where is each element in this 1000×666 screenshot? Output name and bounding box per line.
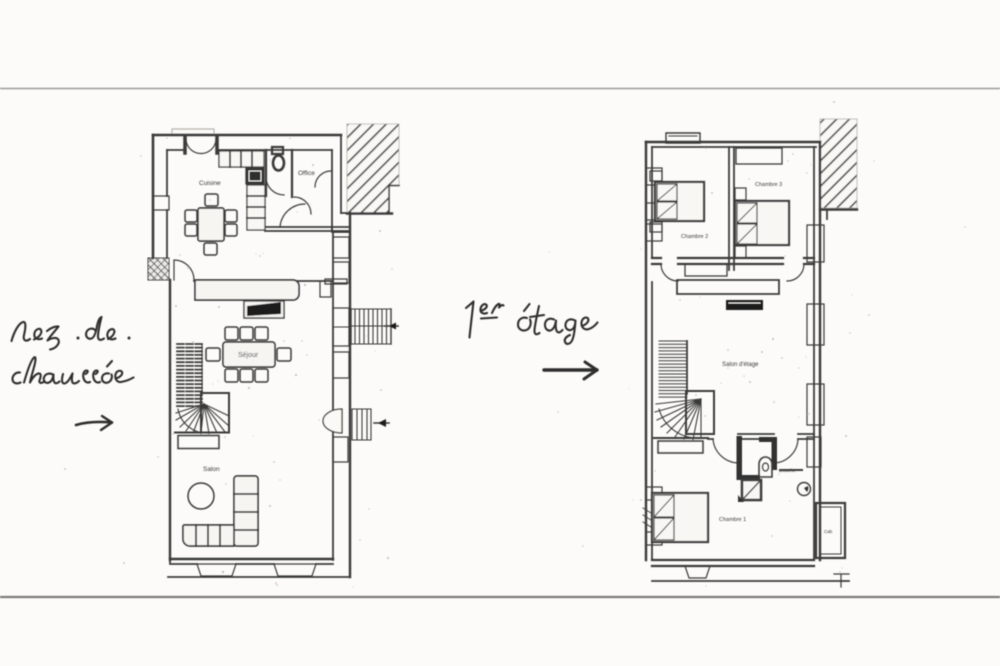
svg-text:Cab: Cab [824,529,833,534]
svg-text:Douche: Douche [779,468,796,474]
svg-text:Cuisine: Cuisine [199,180,221,187]
svg-text:Office: Office [298,170,315,177]
svg-text:Chambre 2: Chambre 2 [681,234,708,240]
svg-text:Séjour: Séjour [238,352,259,359]
svg-text:Salon: Salon [203,466,220,473]
svg-text:Chambre 1: Chambre 1 [719,517,746,523]
svg-text:Chambre 3: Chambre 3 [755,182,782,188]
svg-text:Salon d'étage: Salon d'étage [722,362,759,368]
